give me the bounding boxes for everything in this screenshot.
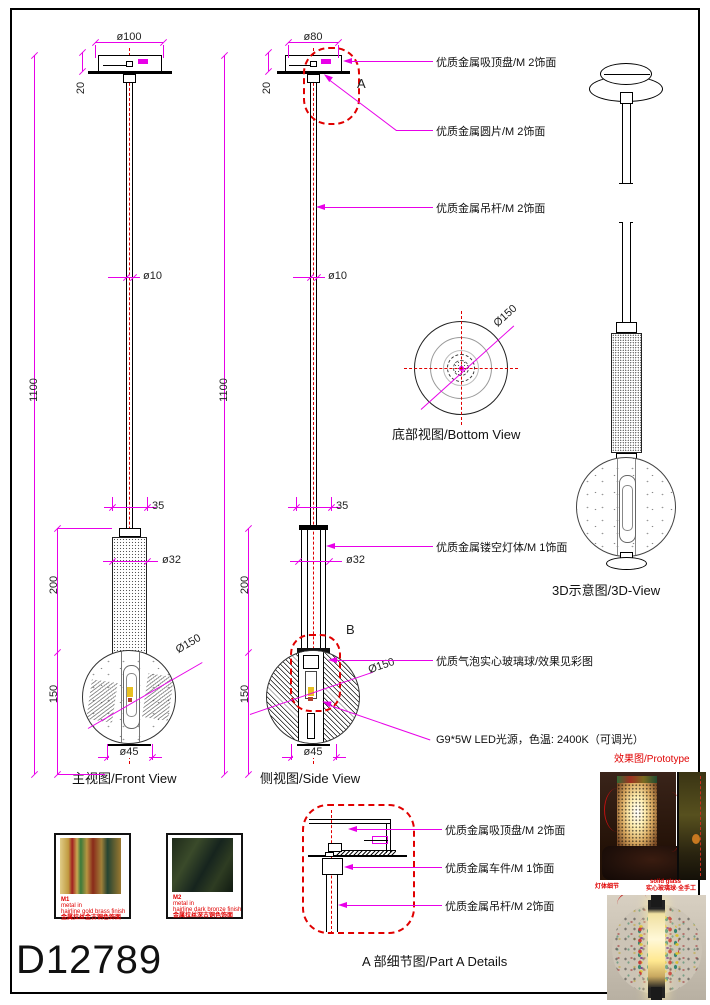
detail-rod — [326, 875, 338, 932]
material-m2-line3: 金属拉丝深古铜色饰面 — [173, 913, 233, 920]
dim-side-canopy-h: 20 — [261, 82, 273, 94]
3d-view-label: 3D示意图/3D-View — [552, 580, 660, 599]
detail-line — [309, 819, 391, 820]
photo-strip-dashline — [700, 776, 701, 876]
detail-b-cloud — [290, 634, 341, 712]
detail-turned-part — [328, 843, 342, 852]
material-m1-image — [60, 838, 121, 894]
dim-line — [34, 55, 35, 774]
ext-line — [288, 45, 289, 58]
prototype-photo-lamp — [600, 772, 706, 880]
material-swatch-m2: M2 metal in hairline dark bronze finish … — [166, 833, 243, 919]
dim-front-canopy-h: 20 — [75, 82, 87, 94]
ext-line — [112, 497, 113, 511]
leader-line — [355, 829, 442, 830]
ext-line — [338, 45, 339, 58]
front-canopy-nub — [123, 74, 136, 83]
dim-front-neck-w: 35 — [152, 500, 164, 512]
leader-line — [351, 867, 442, 868]
leader-line — [333, 546, 433, 547]
prototype-note-left: 灯体细节 — [595, 884, 619, 891]
section-stem — [307, 713, 315, 739]
leader-line — [335, 660, 433, 661]
annotation-detail-plate: 优质金属吸顶盘/M 2饰面 — [445, 822, 565, 838]
ext-line — [57, 774, 105, 775]
bottom-view-label: 底部视图/Bottom View — [392, 424, 520, 443]
3d-canopy-nub — [620, 92, 633, 104]
dim-front-ball-h: 150 — [48, 685, 60, 703]
material-m1-line3: 金属拉丝金古铜色饰面 — [61, 915, 121, 922]
annotation-detail-rod: 优质金属吊杆/M 2饰面 — [445, 898, 554, 914]
dim-side-body-h: 200 — [239, 576, 251, 594]
front-canopy-block — [126, 61, 133, 67]
3d-rod-upper — [622, 104, 631, 184]
ext-line — [331, 497, 332, 511]
dim-side-rod-dia: ø10 — [328, 270, 347, 282]
detail-line — [364, 840, 388, 841]
annotation-glass-ball: 优质气泡实心玻璃球/效果见彩图 — [436, 653, 593, 669]
drawing-code: D12789 — [16, 938, 162, 983]
dim-side-neck-w: 35 — [336, 500, 348, 512]
detail-turned-part2 — [325, 852, 334, 857]
leader-line — [345, 905, 442, 906]
photo-rod-top — [651, 895, 662, 907]
dim-front-rod-dia: ø10 — [143, 270, 162, 282]
marker-b: B — [346, 622, 355, 637]
3d-rod-break — [619, 183, 633, 184]
dim-side-cap-dia: ø45 — [293, 746, 333, 758]
prototype-label: 效果图/Prototype — [614, 750, 690, 765]
leader-line — [350, 61, 433, 62]
3d-mesh-body — [611, 333, 642, 453]
prototype-photo-glassball — [607, 895, 706, 1000]
ext-line — [147, 497, 148, 511]
photo-rod-bottom — [651, 987, 662, 1000]
annotation-metal-disc: 优质金属圆片/M 2饰面 — [436, 123, 545, 139]
detail-line — [309, 823, 391, 824]
ext-line — [57, 528, 112, 529]
detail-line — [390, 819, 391, 853]
dim-side-ball-h: 150 — [239, 685, 251, 703]
photo-wire — [604, 788, 631, 832]
photo-bulb — [648, 900, 665, 998]
front-glass-sphere — [82, 650, 176, 744]
front-rod — [126, 83, 133, 528]
dim-side-canopy-dia: ø80 — [283, 31, 343, 43]
dim-front-body-h: 200 — [48, 576, 60, 594]
sphere-hatch-streak — [86, 679, 117, 722]
3d-glass-sphere — [576, 457, 676, 557]
material-swatch-m1: M1 metal in hairline gold brass finish 金… — [54, 833, 131, 919]
dim-line — [268, 52, 269, 71]
front-collar — [119, 528, 141, 537]
dim-front-overall: 1100 — [28, 378, 40, 402]
dim-side-overall: 1100 — [218, 378, 230, 402]
dim-front-body-dia: ø32 — [162, 554, 181, 566]
dim-front-canopy-dia: ø100 — [97, 31, 161, 43]
prototype-note-right-1: solid glass — [650, 879, 681, 886]
dim-line — [248, 652, 249, 774]
ext-line — [296, 497, 297, 511]
dim-side-body-dia: ø32 — [346, 554, 365, 566]
bottomview-crosshair-v — [461, 311, 462, 425]
sphere-channel-line — [121, 651, 122, 744]
side-rod — [310, 83, 317, 525]
annotation-ceiling-plate: 优质金属吸顶盘/M 2饰面 — [436, 54, 556, 70]
3d-bulb-inner — [622, 485, 633, 531]
annotation-led: G9*5W LED光源，色温: 2400K（可调光） — [436, 731, 644, 747]
dim-line — [224, 55, 225, 774]
front-canopy-fastener — [138, 59, 148, 64]
marker-a: A — [357, 76, 366, 91]
prototype-note-right-2: 实心玻璃球·全手工 — [646, 886, 696, 893]
ext-line — [95, 45, 96, 58]
3d-collar-top — [616, 322, 637, 333]
3d-rod-lower — [622, 222, 631, 322]
photo-mesh-top-trim — [617, 776, 657, 783]
side-tube — [301, 525, 326, 651]
photo-strip-blob — [692, 834, 700, 844]
dim-line — [57, 652, 58, 774]
front-bulb-glow — [127, 687, 133, 697]
dim-front-cap-dia: ø45 — [109, 746, 149, 758]
front-mesh-body — [112, 537, 147, 654]
annotation-hanging-rod: 优质金属吊杆/M 2饰面 — [436, 200, 545, 216]
side-tube-wall — [307, 530, 308, 651]
detail-rod-block — [322, 858, 343, 875]
detail-line — [308, 855, 407, 857]
photo-right-strip — [677, 772, 706, 880]
3d-canopy-line — [604, 74, 650, 75]
material-m2-image — [172, 838, 233, 892]
leader-line — [396, 130, 433, 131]
front-view-label: 主视图/Front View — [72, 768, 177, 787]
dim-line — [82, 52, 83, 71]
part-a-label: A 部细节图/Part A Details — [362, 951, 507, 970]
leader-line — [323, 207, 433, 208]
annotation-detail-turned: 优质金属车件/M 1饰面 — [445, 860, 554, 876]
annotation-hollow-body: 优质金属镂空灯体/M 1饰面 — [436, 539, 567, 555]
side-tube-wall — [320, 530, 321, 651]
drawing-sheet: 主视图/Front View ø100 20 1100 ø10 35 ø32 2… — [0, 0, 710, 1005]
3d-channel-line — [617, 458, 618, 557]
ext-line — [163, 45, 164, 58]
side-view-label: 侧视图/Side View — [260, 768, 360, 787]
3d-bottom-cap — [606, 557, 647, 570]
